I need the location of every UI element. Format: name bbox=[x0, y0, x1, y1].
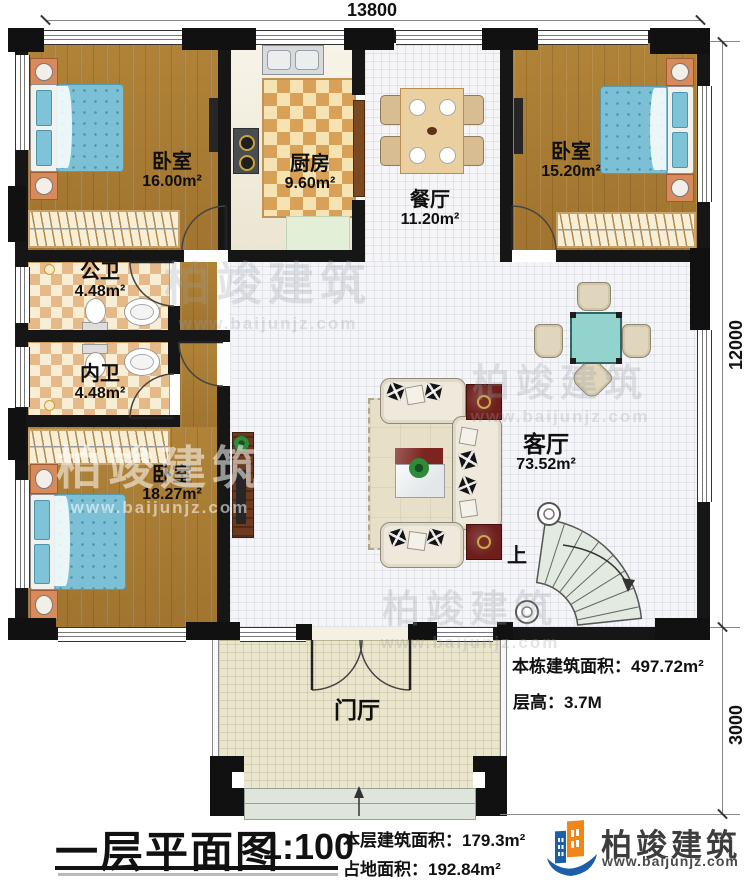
wall-pier bbox=[497, 622, 513, 640]
side-table bbox=[466, 384, 502, 420]
wall-segment bbox=[352, 43, 365, 95]
burner bbox=[239, 135, 255, 151]
dimension-extension bbox=[500, 814, 740, 815]
room-label-bedroom-top-left: 卧室 16.00m² bbox=[142, 152, 202, 191]
sink-basin bbox=[267, 50, 291, 70]
column-notch bbox=[473, 772, 485, 788]
tv bbox=[209, 98, 218, 152]
tv bbox=[236, 470, 246, 524]
porch-rail bbox=[212, 640, 219, 758]
nightstand bbox=[30, 464, 58, 494]
room-label-kitchen: 厨房 9.60m² bbox=[285, 154, 336, 193]
wall-pier bbox=[8, 408, 26, 460]
room-name: 卧室 bbox=[142, 465, 202, 486]
column-notch bbox=[232, 772, 244, 788]
nightstand bbox=[30, 58, 58, 86]
wall-segment bbox=[218, 43, 231, 250]
plate bbox=[409, 99, 426, 116]
window bbox=[15, 480, 30, 588]
wardrobe bbox=[28, 210, 180, 248]
stove bbox=[233, 128, 259, 174]
door-jamb bbox=[296, 624, 312, 640]
pillow bbox=[34, 544, 50, 584]
wardrobe bbox=[28, 429, 170, 465]
room-label-bath-inner: 内卫 4.48m² bbox=[75, 364, 126, 403]
dimension-right-upper-value: 12000 bbox=[726, 290, 747, 400]
pillow bbox=[36, 130, 52, 166]
wall-segment bbox=[228, 250, 365, 262]
toilet bbox=[85, 298, 106, 324]
game-chair bbox=[577, 282, 611, 311]
table-corner bbox=[570, 358, 576, 364]
floor-drain bbox=[44, 264, 55, 275]
room-area: 11.20m² bbox=[401, 211, 460, 229]
wall-segment bbox=[168, 342, 180, 374]
total-building-area: 本栋建筑面积：497.72m² bbox=[512, 652, 704, 677]
room-label-bedroom-top-right: 卧室 15.20m² bbox=[541, 142, 601, 181]
game-chair bbox=[534, 324, 563, 358]
pillow bbox=[459, 499, 478, 518]
window bbox=[538, 30, 648, 45]
plate bbox=[409, 147, 426, 164]
nightstand bbox=[30, 590, 58, 620]
room-name: 卧室 bbox=[142, 152, 202, 173]
dimension-right-lower-value: 3000 bbox=[726, 685, 747, 765]
kitchen-sliding-door bbox=[353, 100, 365, 197]
land-area-note: 占地面积：192.84m² bbox=[343, 855, 501, 880]
room-label-dining: 餐厅 11.20m² bbox=[401, 190, 460, 229]
window bbox=[42, 30, 182, 45]
floor-drain bbox=[44, 400, 55, 411]
tv bbox=[514, 98, 523, 154]
wall-pier bbox=[182, 28, 256, 50]
porch-rail bbox=[500, 640, 507, 758]
table-corner bbox=[570, 312, 576, 318]
company-logo-icon bbox=[543, 818, 599, 878]
room-name: 卧室 bbox=[541, 142, 601, 163]
sink-basin bbox=[295, 50, 319, 70]
window bbox=[255, 30, 345, 45]
room-area: 73.52m² bbox=[516, 456, 576, 474]
wall-pier bbox=[8, 618, 56, 640]
floor-area-note: 本层建筑面积：179.3m² bbox=[343, 826, 525, 851]
room-label-foyer: 门厅 bbox=[334, 698, 380, 722]
room-name: 厨房 bbox=[285, 154, 336, 175]
table-corner bbox=[616, 358, 622, 364]
stairs-up-label: 上 bbox=[507, 546, 527, 567]
dimension-extension bbox=[710, 41, 740, 42]
pillow bbox=[405, 385, 426, 406]
pillow bbox=[672, 132, 688, 168]
game-chair bbox=[622, 324, 651, 358]
plant bbox=[409, 458, 429, 478]
wall-segment bbox=[500, 43, 513, 250]
window bbox=[15, 267, 30, 323]
up-label: 上 bbox=[507, 546, 527, 567]
floor-bedroom-nook bbox=[180, 342, 217, 427]
dining-table bbox=[400, 88, 464, 174]
door-jamb bbox=[408, 624, 424, 640]
window bbox=[697, 86, 712, 202]
room-label-bedroom-bottom-left: 卧室 18.27m² bbox=[142, 465, 202, 504]
room-name: 内卫 bbox=[75, 364, 126, 385]
wall-segment bbox=[500, 250, 512, 262]
pillow bbox=[425, 383, 443, 401]
company-logo-url: www.baijunjz.com bbox=[602, 853, 739, 869]
nightstand bbox=[666, 58, 694, 86]
dimension-line-right bbox=[722, 42, 723, 814]
wall-segment bbox=[168, 306, 180, 330]
wall-segment bbox=[217, 386, 230, 627]
wall-pier bbox=[650, 28, 710, 54]
room-area: 9.60m² bbox=[285, 175, 336, 193]
bed-sheet bbox=[54, 496, 70, 586]
dish bbox=[427, 127, 437, 135]
window bbox=[15, 347, 30, 407]
window bbox=[58, 627, 186, 642]
window bbox=[15, 55, 30, 150]
window bbox=[396, 30, 482, 45]
room-name: 客厅 bbox=[516, 432, 576, 456]
pillow bbox=[459, 427, 479, 447]
room-area: 18.27m² bbox=[142, 486, 202, 504]
pillow bbox=[672, 92, 688, 128]
game-table bbox=[570, 312, 622, 364]
burner bbox=[239, 155, 255, 171]
pillow bbox=[34, 500, 50, 540]
wall-pier bbox=[482, 28, 538, 50]
kitchen-sink bbox=[262, 45, 324, 75]
door-threshold bbox=[312, 627, 408, 640]
plan-scale: 1:100 bbox=[262, 826, 354, 868]
floor-plan-canvas: 13800 12000 3000 卧室 16.00m² 厨房 9.60m² 餐厅… bbox=[0, 0, 750, 885]
room-name: 餐厅 bbox=[401, 190, 460, 211]
bathroom-sink bbox=[124, 298, 160, 326]
wall-segment bbox=[15, 330, 230, 342]
wall-segment bbox=[15, 415, 180, 427]
pillow bbox=[36, 90, 52, 126]
wall-pier bbox=[203, 622, 219, 640]
kitchen-rug bbox=[262, 78, 356, 218]
wall-pier bbox=[344, 28, 394, 50]
room-label-bath-public: 公卫 4.48m² bbox=[75, 262, 126, 301]
nightstand bbox=[666, 174, 694, 202]
room-area: 16.00m² bbox=[142, 173, 202, 191]
wardrobe bbox=[556, 212, 696, 248]
room-area: 15.20m² bbox=[541, 163, 601, 181]
room-label-living: 客厅 73.52m² bbox=[516, 432, 576, 474]
wall-pier bbox=[8, 186, 26, 242]
room-name: 门厅 bbox=[334, 698, 380, 722]
room-name: 公卫 bbox=[75, 262, 126, 283]
bed-sheet bbox=[56, 86, 72, 168]
plan-title: 一层平面图 bbox=[55, 818, 280, 880]
side-table bbox=[466, 524, 502, 560]
nightstand bbox=[30, 172, 58, 200]
bathroom-sink bbox=[124, 348, 160, 376]
plate bbox=[439, 147, 456, 164]
plate bbox=[439, 99, 456, 116]
dimension-top-value: 13800 bbox=[322, 0, 422, 21]
window bbox=[437, 627, 493, 642]
floor-vestibule bbox=[180, 262, 217, 330]
plant bbox=[234, 436, 249, 451]
window bbox=[697, 330, 712, 502]
pillow bbox=[407, 531, 427, 551]
wall-segment bbox=[556, 250, 710, 262]
table-corner bbox=[616, 312, 622, 318]
floor-height: 层高：3.7M bbox=[513, 688, 602, 713]
room-area: 4.48m² bbox=[75, 385, 126, 403]
wall-pier bbox=[8, 28, 44, 52]
bed-sheet bbox=[650, 88, 666, 170]
wall-pier bbox=[690, 248, 710, 330]
room-area: 4.48m² bbox=[75, 283, 126, 301]
wall-pier bbox=[655, 618, 710, 640]
